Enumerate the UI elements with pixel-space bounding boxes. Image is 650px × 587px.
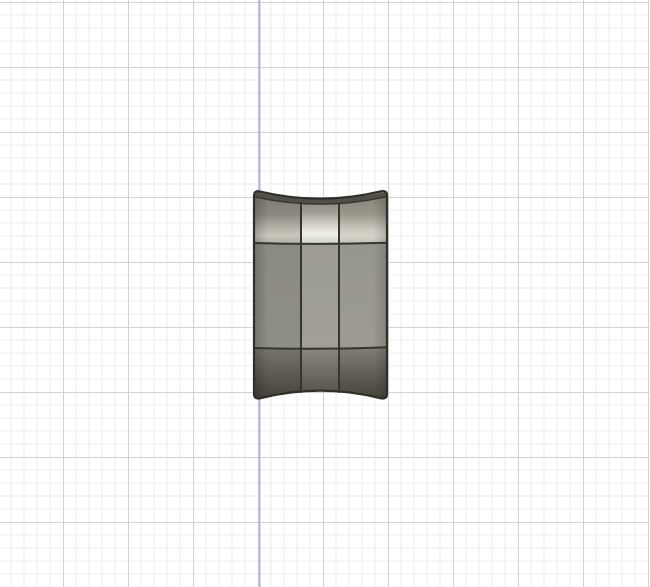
cad-viewport[interactable] <box>0 0 650 587</box>
model-face-mid-mid[interactable] <box>301 244 339 349</box>
right-edge-shading <box>373 188 387 400</box>
left-edge-shading <box>254 188 268 400</box>
model-body[interactable] <box>254 188 387 400</box>
